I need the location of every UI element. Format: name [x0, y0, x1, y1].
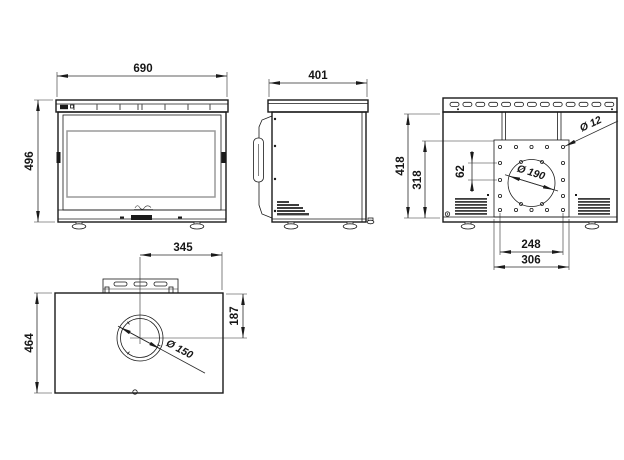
- bolt-hole-dimension: Ø 12: [565, 114, 618, 146]
- side-depth-label: 401: [308, 70, 328, 82]
- plate-height-dimension: 318: [412, 141, 494, 218]
- top-view: 345: [24, 242, 247, 394]
- bolt-hole-label: Ø 12: [578, 114, 604, 135]
- cap-latch-detail: [60, 105, 68, 109]
- technical-drawing-page: 690 496: [0, 0, 624, 460]
- flue-front-offset-dimension: 187: [226, 294, 247, 338]
- side-depth-dimension: 401: [269, 70, 367, 97]
- front-height-dimension: 496: [24, 100, 55, 222]
- brand-logo: [134, 206, 153, 210]
- flue-front-offset-label: 187: [229, 306, 241, 325]
- door-frame: [63, 115, 221, 210]
- flue-offset-dimension: 345: [140, 242, 222, 290]
- back-view: Ø 190 Ø 12: [395, 98, 618, 270]
- left-louvre-vent: [455, 194, 489, 215]
- flue-hole-dimension: Ø 190: [505, 163, 558, 191]
- back-height-label: 418: [395, 156, 407, 176]
- front-width-label: 690: [133, 63, 152, 75]
- plate-height-label: 318: [412, 170, 424, 190]
- front-body: [57, 112, 227, 222]
- front-top-cap: [56, 100, 228, 112]
- side-body: [254, 100, 369, 222]
- top-body: Ø 150: [55, 257, 247, 394]
- stove-dimension-drawing: 690 496: [0, 0, 624, 460]
- hole-pitch-label: 62: [455, 165, 467, 178]
- bolt-pitch-label: 248: [521, 239, 541, 251]
- ash-lip-handle: [131, 215, 152, 220]
- plate-width-label: 306: [521, 255, 540, 267]
- front-feet: [72, 222, 204, 229]
- top-depth-dimension: 464: [24, 293, 52, 393]
- door-glass: [67, 131, 215, 197]
- top-depth-label: 464: [24, 333, 36, 353]
- back-feet: [461, 222, 599, 229]
- front-height-label: 496: [24, 151, 36, 170]
- right-louvre-vent: [575, 194, 610, 215]
- flue-diameter-label: Ø 150: [164, 337, 195, 361]
- flue-offset-label: 345: [173, 242, 193, 254]
- back-vent-band: [443, 98, 617, 112]
- back-height-dimension: 418: [395, 114, 440, 218]
- rear-flange: [103, 279, 178, 293]
- right-latch: [222, 152, 226, 163]
- rating-plate: [277, 201, 309, 215]
- front-view: 690 496: [24, 63, 228, 229]
- front-width-dimension: 690: [57, 63, 227, 97]
- left-hinge: [57, 152, 61, 163]
- side-feet: [284, 218, 374, 229]
- flue-diameter-dimension: Ø 150: [118, 326, 205, 373]
- side-view: 401: [254, 70, 374, 229]
- hole-pitch-dimension: 62: [455, 151, 497, 192]
